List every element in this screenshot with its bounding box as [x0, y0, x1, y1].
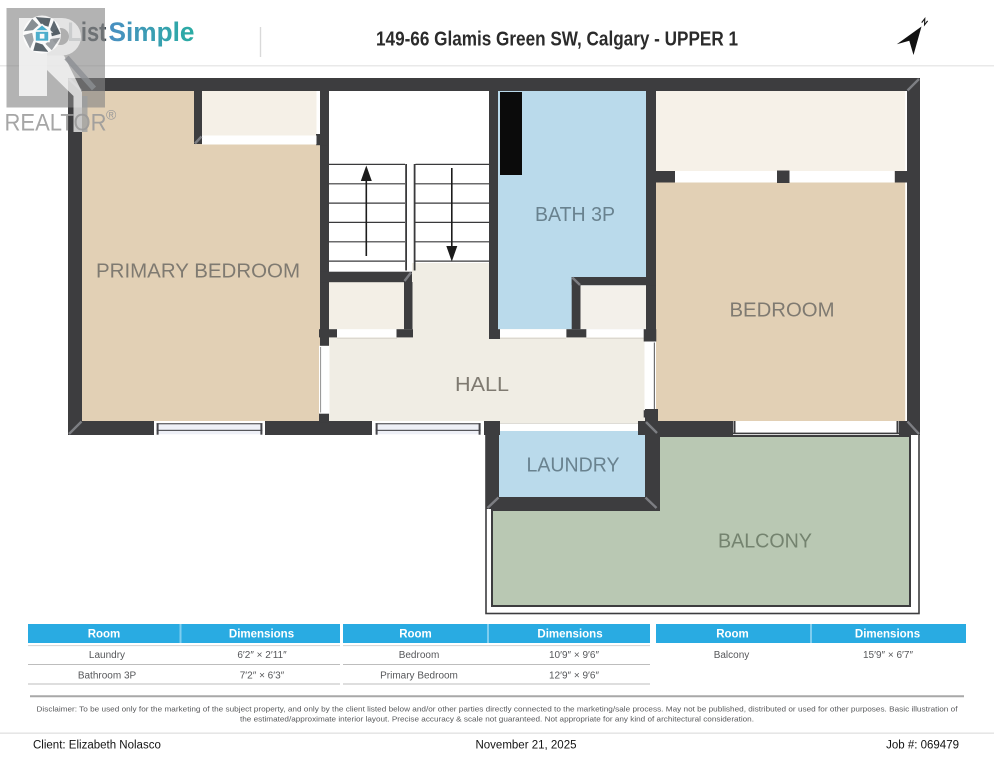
- svg-text:15′9″ × 6′7″: 15′9″ × 6′7″: [863, 650, 913, 661]
- svg-text:the estimated/approximate inte: the estimated/approximate interior layou…: [240, 715, 754, 724]
- svg-text:Client: Elizabeth Nolasco: Client: Elizabeth Nolasco: [33, 740, 161, 752]
- svg-text:7′2″ × 6′3″: 7′2″ × 6′3″: [240, 671, 285, 682]
- svg-text:®: ®: [106, 107, 117, 123]
- svg-text:LAUNDRY: LAUNDRY: [527, 455, 620, 477]
- svg-text:Disclaimer: To be used only fo: Disclaimer: To be used only for the mark…: [37, 705, 959, 714]
- svg-text:Room: Room: [88, 629, 121, 641]
- svg-text:Dimensions: Dimensions: [855, 629, 920, 641]
- svg-text:Balcony: Balcony: [714, 650, 750, 661]
- svg-text:Laundry: Laundry: [89, 650, 125, 661]
- svg-text:Job #: 069479: Job #: 069479: [886, 740, 959, 752]
- svg-text:November 21, 2025: November 21, 2025: [475, 740, 576, 752]
- svg-text:PRIMARY BEDROOM: PRIMARY BEDROOM: [96, 261, 300, 283]
- svg-text:10′9″ × 9′6″: 10′9″ × 9′6″: [549, 650, 599, 661]
- svg-text:BATH 3P: BATH 3P: [535, 204, 615, 226]
- svg-text:BALCONY: BALCONY: [718, 531, 812, 553]
- svg-text:HALL: HALL: [455, 374, 509, 396]
- svg-text:149-66 Glamis Green SW, Calgar: 149-66 Glamis Green SW, Calgary - UPPER …: [376, 29, 738, 51]
- svg-text:Dimensions: Dimensions: [229, 629, 294, 641]
- svg-text:Room: Room: [716, 629, 749, 641]
- svg-text:Dimensions: Dimensions: [537, 629, 602, 641]
- svg-text:BEDROOM: BEDROOM: [730, 300, 835, 322]
- svg-text:Simple: Simple: [109, 17, 195, 47]
- svg-text:Bathroom 3P: Bathroom 3P: [78, 671, 137, 682]
- svg-text:REALTOR: REALTOR: [5, 110, 107, 137]
- svg-text:Primary Bedroom: Primary Bedroom: [380, 671, 458, 682]
- svg-text:6′2″ × 2′11″: 6′2″ × 2′11″: [237, 650, 287, 661]
- svg-text:12′9″ × 9′6″: 12′9″ × 9′6″: [549, 671, 599, 682]
- svg-text:Bedroom: Bedroom: [399, 650, 440, 661]
- svg-text:Room: Room: [399, 629, 432, 641]
